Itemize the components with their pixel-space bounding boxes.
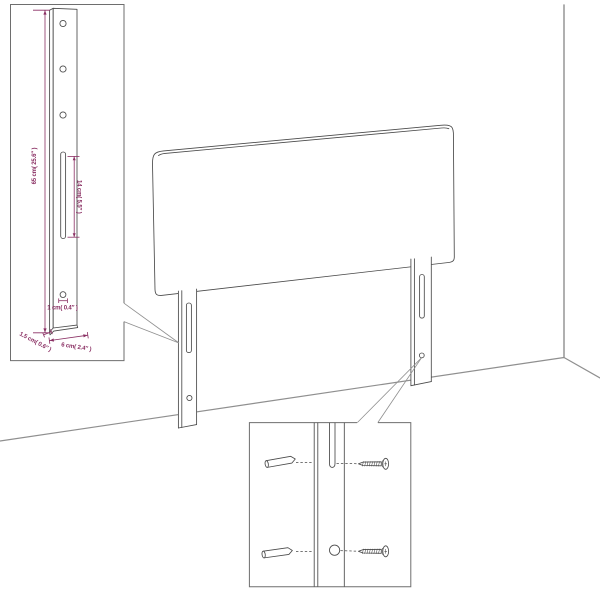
leg-dimension-inset: 65 cm( 25.6″ ) 14 cm( 5.5″ ) 1 cm( 0.4″ … (11, 5, 125, 361)
height-dimension-label: 65 cm( 25.6″ ) (32, 147, 38, 184)
floor-line-right (564, 358, 600, 379)
leg-screw-hole (187, 395, 192, 400)
mounting-hole (60, 66, 66, 72)
headboard-leg-right (411, 257, 431, 386)
slot-length-dimension-label: 14 cm( 5.5″ ) (76, 180, 82, 214)
screw-hole (330, 545, 340, 555)
headboard (152, 125, 454, 428)
inset-border (249, 423, 410, 587)
callout-line (124, 322, 179, 343)
leg-slot (186, 303, 191, 353)
leg-screw-hole (419, 353, 424, 358)
leg-slot (61, 152, 66, 239)
mounting-detail-inset (249, 423, 410, 587)
mounting-hole (60, 20, 66, 26)
callout-to-mounting-inset (357, 358, 421, 423)
diagram-canvas: 65 cm( 25.6″ ) 14 cm( 5.5″ ) 1 cm( 0.4″ … (0, 0, 600, 600)
callout-line (124, 303, 179, 343)
leg-side-view (50, 8, 78, 335)
leg-side-face (50, 8, 54, 332)
callout-line (357, 358, 421, 423)
callout-line (378, 358, 422, 423)
hole-diameter-dimension-label: 1 cm( 0.4″ ) (47, 306, 78, 312)
headboard-leg-left (178, 289, 196, 429)
callout-to-leg-inset (124, 303, 179, 343)
small-screw-hole (60, 292, 66, 298)
product-assembly-diagram: 65 cm( 25.6″ ) 14 cm( 5.5″ ) 1 cm( 0.4″ … (0, 0, 600, 600)
leg-slot (420, 275, 425, 319)
mounting-hole (60, 112, 66, 118)
